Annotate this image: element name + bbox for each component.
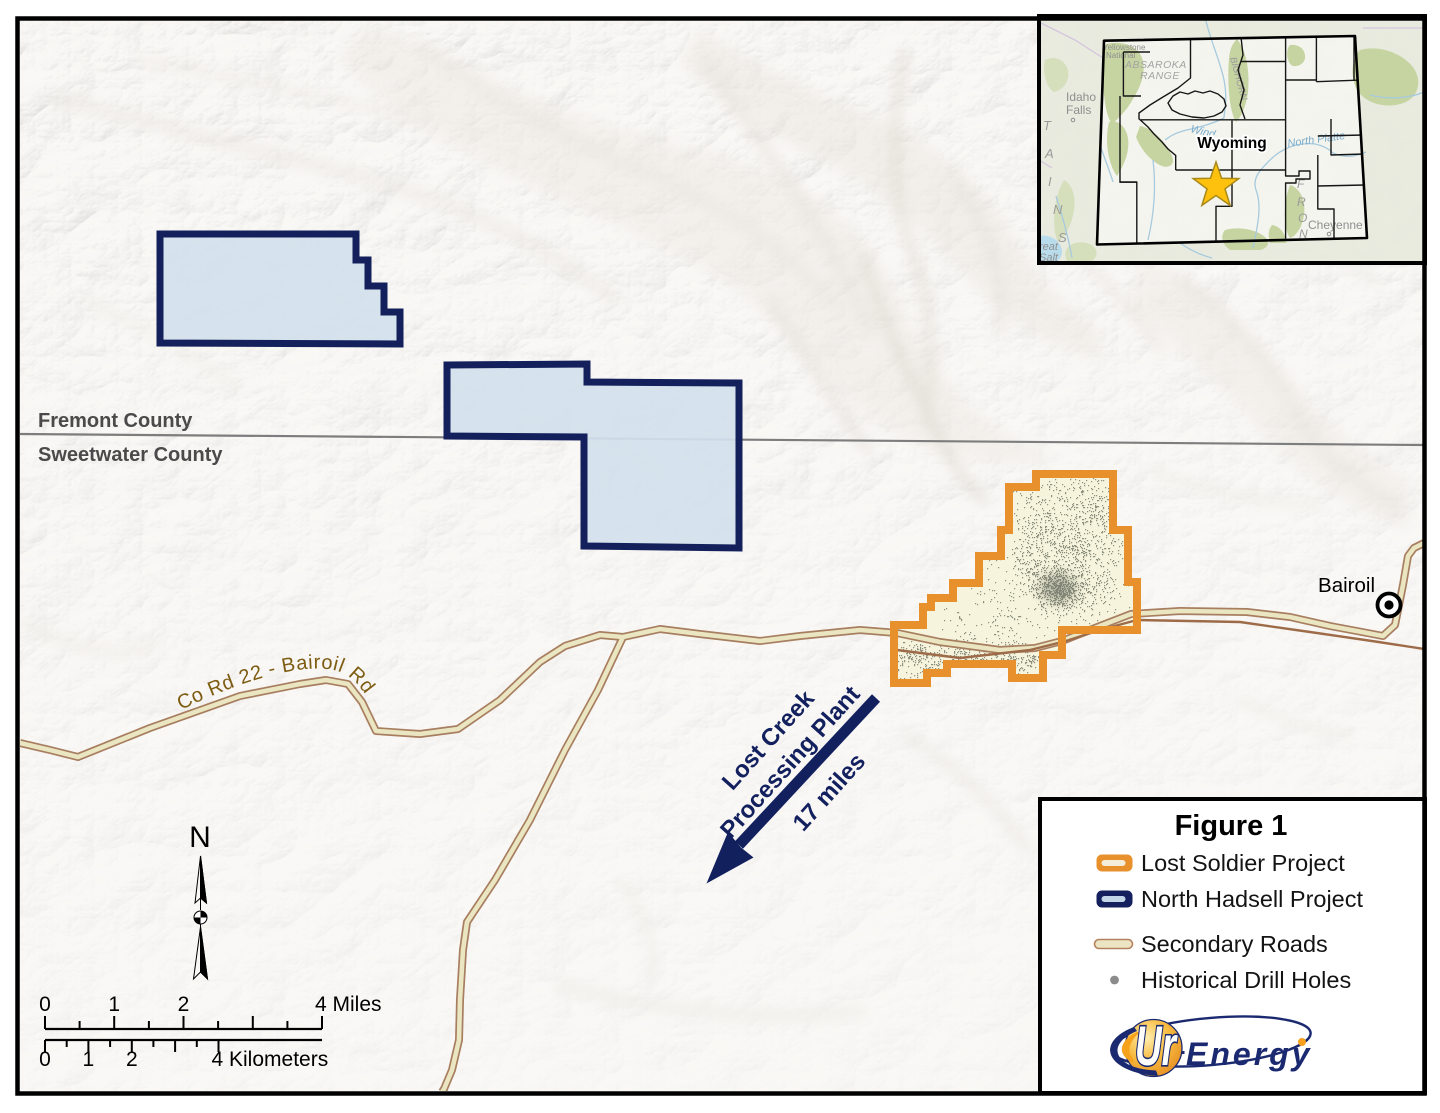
svg-text:RANGE: RANGE: [1140, 70, 1180, 82]
svg-text:O: O: [1298, 211, 1307, 225]
svg-text:S: S: [1058, 230, 1067, 245]
svg-text:A: A: [1044, 146, 1054, 161]
svg-text:Sweetwater County: Sweetwater County: [38, 444, 223, 466]
svg-text:2: 2: [178, 993, 190, 1016]
svg-text:Historical Drill Holes: Historical Drill Holes: [1141, 967, 1351, 993]
svg-text:North Hadsell Project: North Hadsell Project: [1141, 886, 1364, 912]
svg-text:Figure 1: Figure 1: [1175, 810, 1288, 842]
svg-text:0: 0: [39, 1048, 51, 1071]
svg-text:I: I: [1048, 174, 1052, 189]
svg-text:Lost Soldier Project: Lost Soldier Project: [1141, 850, 1345, 876]
svg-text:4 Kilometers: 4 Kilometers: [212, 1048, 329, 1071]
svg-text:1: 1: [83, 1048, 95, 1071]
svg-text:Wyoming: Wyoming: [1197, 135, 1266, 152]
svg-text:0: 0: [39, 993, 51, 1016]
svg-text:1: 1: [108, 993, 120, 1016]
svg-text:Fremont County: Fremont County: [38, 410, 193, 432]
svg-text:Cheyenne: Cheyenne: [1308, 218, 1363, 232]
svg-text:4 Miles: 4 Miles: [315, 993, 382, 1016]
svg-text:N: N: [189, 821, 211, 854]
svg-text:T: T: [1043, 118, 1052, 133]
svg-text:Secondary Roads: Secondary Roads: [1141, 931, 1328, 957]
svg-text:2: 2: [126, 1048, 138, 1071]
svg-text:Ur: Ur: [1135, 1015, 1178, 1078]
svg-text:Energy: Energy: [1186, 1036, 1312, 1072]
svg-text:R: R: [1297, 195, 1306, 209]
svg-text:Bairoil: Bairoil: [1318, 574, 1375, 597]
svg-text:Idaho: Idaho: [1066, 90, 1096, 104]
svg-text:Falls: Falls: [1066, 103, 1091, 117]
svg-text:N: N: [1053, 202, 1063, 217]
